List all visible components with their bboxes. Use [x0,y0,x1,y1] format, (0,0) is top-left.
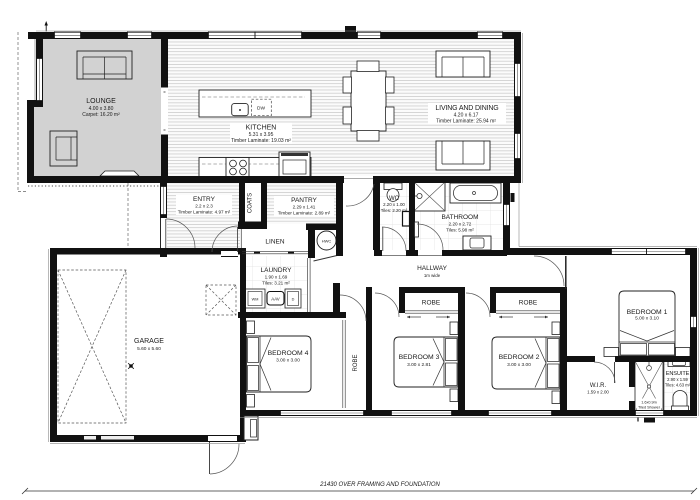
svg-text:Timber Laminate: 4.97 m²: Timber Laminate: 4.97 m² [178,210,231,215]
svg-text:BATHROOM: BATHROOM [441,214,478,221]
svg-text:DW: DW [257,106,265,112]
svg-text:GARAGE: GARAGE [134,338,164,345]
svg-text:PANTRY: PANTRY [291,197,317,204]
svg-text:WM: WM [252,298,259,302]
svg-text:COATS: COATS [248,193,254,213]
svg-text:1m wide: 1m wide [424,273,441,278]
svg-text:Timber Laminate: 25.94 m²: Timber Laminate: 25.94 m² [436,119,496,125]
svg-text:21430 OVER FRAMING AND FOUNDAT: 21430 OVER FRAMING AND FOUNDATION [319,482,440,488]
svg-text:AAV: AAV [271,297,280,302]
svg-text:ENTRY: ENTRY [193,196,216,203]
svg-text:W.I.R.: W.I.R. [590,383,607,389]
svg-text:1.59 x 2.00: 1.59 x 2.00 [587,390,609,395]
svg-text:BEDROOM 4: BEDROOM 4 [268,350,309,357]
svg-text:2.90 x 1.59: 2.90 x 1.59 [667,377,688,382]
svg-text:ROBE: ROBE [353,354,359,371]
svg-text:BEDROOM 3: BEDROOM 3 [399,354,440,361]
svg-text:Timber Laminate: 19.03 m²: Timber Laminate: 19.03 m² [231,138,291,144]
svg-text:LIVING AND DINING: LIVING AND DINING [435,105,498,112]
svg-text:LOUNGE: LOUNGE [86,98,116,105]
svg-text:Tiles: 3.21 m²: Tiles: 3.21 m² [262,281,290,286]
svg-text:Timber Laminate: 2.89 m²: Timber Laminate: 2.89 m² [278,211,331,216]
svg-text:HWC: HWC [322,239,332,244]
svg-text:Tiled Shower: Tiled Shower [638,406,661,410]
svg-text:ROBE: ROBE [422,300,441,307]
svg-text:LAUNDRY: LAUNDRY [261,267,293,274]
svg-text:2.20 x 2.72: 2.20 x 2.72 [449,222,472,227]
svg-text:D: D [292,298,295,302]
svg-text:3.00 x 3.00: 3.00 x 3.00 [507,362,531,368]
svg-text:Tiles: 4.63 m²: Tiles: 4.63 m² [665,383,691,388]
svg-text:Tiles: 2.20 m²: Tiles: 2.20 m² [381,208,408,213]
svg-text:2.20 x 1.00: 2.20 x 1.00 [383,202,405,207]
svg-text:LINEN: LINEN [265,239,284,246]
svg-text:3.00 x 2.81: 3.00 x 2.81 [407,362,431,368]
svg-text:BEDROOM 2: BEDROOM 2 [499,354,540,361]
svg-text:5.60 x 5.60: 5.60 x 5.60 [137,346,161,352]
svg-text:HALLWAY: HALLWAY [417,265,448,272]
svg-text:1.6x0.9m: 1.6x0.9m [641,401,657,405]
svg-text:2.29 x 1.41: 2.29 x 1.41 [293,205,316,210]
svg-text:Tiles: 5.98 m²: Tiles: 5.98 m² [446,228,474,233]
svg-text:1.90 x 1.69: 1.90 x 1.69 [265,275,288,280]
svg-text:3.00 x 3.00: 3.00 x 3.00 [276,358,300,364]
svg-text:KITCHEN: KITCHEN [246,125,277,132]
svg-text:2.2 x 2.3: 2.2 x 2.3 [195,204,213,209]
svg-text:ROBE: ROBE [519,300,538,307]
svg-text:BEDROOM 1: BEDROOM 1 [627,309,668,316]
svg-text:5.00 x 3.10: 5.00 x 3.10 [635,316,659,322]
svg-text:Carpet: 16.20 m²: Carpet: 16.20 m² [82,112,120,118]
